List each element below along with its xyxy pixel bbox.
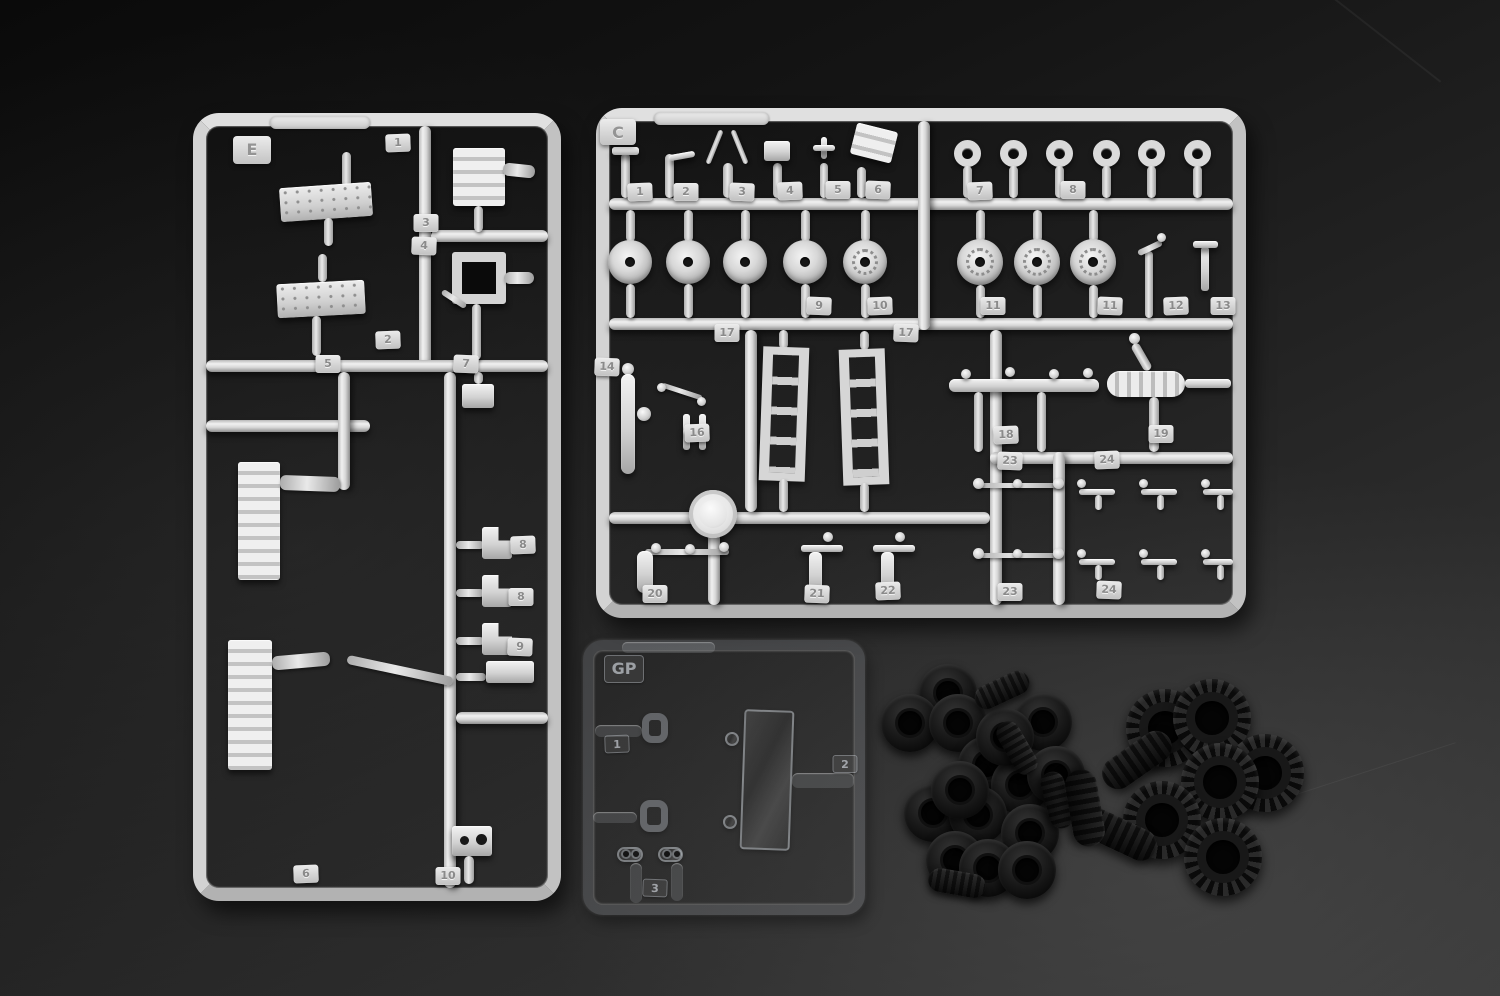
part-exhaust-pipe xyxy=(621,374,635,474)
sprue-c-runner xyxy=(745,330,757,512)
part-winch-drum xyxy=(1107,371,1185,397)
sprue-c-part-number-tag: 24 xyxy=(1094,451,1120,470)
sprue-e-runner xyxy=(444,372,456,888)
sprue-e-frame xyxy=(193,113,561,901)
part-clear-window xyxy=(642,713,668,743)
sprue-c-part-number-tag: 19 xyxy=(1149,425,1174,443)
part-running-board xyxy=(276,280,366,319)
part-ladder-frame xyxy=(839,348,890,486)
part-step-bracket xyxy=(482,575,512,607)
sprue-e-part-number-tag: 10 xyxy=(436,867,461,885)
sprue-c-part-number-tag: 17 xyxy=(893,324,919,343)
surface-scratch xyxy=(1284,742,1455,799)
sprue-c-part-number-tag: 10 xyxy=(867,297,893,316)
sprue-gp-embossed-code xyxy=(622,642,715,653)
part-fuel-tank xyxy=(228,640,272,770)
sprue-c-part-number-tag: 8 xyxy=(1061,181,1086,199)
sprue-gate xyxy=(456,541,484,549)
sprue-gate xyxy=(474,372,483,384)
part-mirror xyxy=(764,141,790,161)
sprue-gate xyxy=(324,218,333,246)
part-clear-light xyxy=(617,847,643,862)
sprue-gp-part-number-tag: 3 xyxy=(642,879,668,898)
part-shift-lever xyxy=(1201,247,1209,291)
sprue-e-letter-plate: E xyxy=(233,136,271,164)
sprue-c-part-number-tag: 12 xyxy=(1163,297,1189,316)
part-valve-cross xyxy=(813,145,835,151)
sprue-c-part-number-tag: 2 xyxy=(674,183,699,201)
sprue-gate xyxy=(502,162,535,178)
sprue-c-embossed-code xyxy=(654,112,769,125)
sprue-c-part-number-tag: 16 xyxy=(684,424,710,443)
sprue-e-part-number-tag: 8 xyxy=(509,588,534,606)
part-running-board xyxy=(279,182,373,222)
sprue-c-part-number-tag: 5 xyxy=(826,181,851,199)
sprue-c-part-number-tag: 22 xyxy=(875,582,901,601)
tire-hub-hole xyxy=(1031,710,1055,734)
sprue-gate xyxy=(272,651,331,670)
sprue-c-runner xyxy=(609,512,990,524)
sprue-e-part-number-tag: 1 xyxy=(385,134,411,153)
sprue-e-runner xyxy=(338,372,350,490)
part-grease-gun xyxy=(612,147,639,155)
sprue-c-part-number-tag: 17 xyxy=(715,324,740,342)
sprue-e-part-number-tag: 9 xyxy=(507,638,533,657)
part-clear-windshield xyxy=(740,709,795,851)
sprue-c-part-number-tag: 14 xyxy=(594,358,620,377)
part-tow-cable-arm xyxy=(705,129,723,164)
sprue-gate xyxy=(456,673,486,681)
part-tow-hitch xyxy=(486,661,534,683)
sprue-e-embossed-code xyxy=(270,116,370,129)
sprue-gate xyxy=(312,316,321,356)
tire-hub-hole xyxy=(948,778,972,802)
sprue-c-part-number-tag: 13 xyxy=(1211,297,1236,315)
part-stowage-box xyxy=(453,148,505,206)
sprue-c-part-number-tag: 23 xyxy=(998,583,1023,601)
sprue-gate xyxy=(504,272,534,284)
sprue-gate xyxy=(456,637,484,645)
sprue-e-part-number-tag: 6 xyxy=(293,865,319,884)
sprue-gate xyxy=(472,304,481,360)
sprue-e-part-number-tag: 8 xyxy=(510,536,536,555)
sprue-c-letter-plate: C xyxy=(600,119,636,145)
sprue-c-part-number-tag: 1 xyxy=(627,183,653,202)
part-hole xyxy=(476,834,487,845)
kit-photo-scene: E C GP 134257889610123456789101111121314… xyxy=(0,0,1500,996)
sprue-c-part-number-tag: 4 xyxy=(777,182,803,201)
tire-hub-hole xyxy=(1195,701,1229,735)
sprue-e-part-number-tag: 5 xyxy=(316,355,341,373)
part-mirror-large xyxy=(850,122,898,163)
surface-scratch xyxy=(1259,0,1441,83)
tire-hub-hole xyxy=(1015,858,1039,882)
rubber-tire-small xyxy=(931,761,989,819)
sprue-e-part-number-tag: 2 xyxy=(375,331,401,350)
sprue-e-runner xyxy=(456,712,548,724)
sprue-c-part-number-tag: 23 xyxy=(997,452,1023,471)
sprue-e-part-number-tag: 7 xyxy=(453,355,479,374)
sprue-c-part-number-tag: 11 xyxy=(1097,297,1123,316)
part-ladder-frame xyxy=(759,346,810,482)
sprue-gp-letter-plate: GP xyxy=(604,655,644,683)
sprue-c-part-number-tag: 9 xyxy=(806,297,832,316)
tire-hub-hole xyxy=(1203,765,1237,799)
part-fuel-tank xyxy=(238,462,280,580)
rubber-tire-large xyxy=(1184,818,1262,896)
sprue-c-part-number-tag: 18 xyxy=(993,426,1019,445)
sprue-e-part-number-tag: 3 xyxy=(414,214,439,232)
rubber-tire-large xyxy=(1062,767,1107,849)
sprue-c-runner xyxy=(918,121,930,330)
sprue-c-part-number-tag: 11 xyxy=(981,297,1006,315)
tire-hub-hole xyxy=(898,711,922,735)
part-small-bracket xyxy=(462,384,494,408)
sprue-gate xyxy=(342,152,351,187)
rubber-tire-small xyxy=(998,841,1056,899)
part-hole xyxy=(460,836,469,845)
sprue-gate xyxy=(280,475,340,492)
sprue-c-part-number-tag: 7 xyxy=(967,182,993,201)
part-tow-cable-arm xyxy=(730,129,748,164)
sprue-e-runner xyxy=(431,230,548,242)
sprue-c-part-number-tag: 24 xyxy=(1096,581,1122,600)
part-clear-lens xyxy=(725,732,739,746)
part-axle-beam xyxy=(949,379,1099,392)
sprue-gp-part-number-tag: 2 xyxy=(833,755,858,773)
sprue-c-part-number-tag: 20 xyxy=(643,585,668,603)
tire-hub-hole xyxy=(946,711,970,735)
sprue-gate xyxy=(318,254,327,282)
sprue-c-part-number-tag: 21 xyxy=(804,585,830,604)
part-step-bracket xyxy=(482,527,512,559)
part-spare-wheel-disc xyxy=(689,490,737,538)
sprue-gp-part-number-tag: 1 xyxy=(604,735,630,754)
sprue-gate xyxy=(474,206,483,232)
sprue-c-part-number-tag: 6 xyxy=(865,181,891,200)
part-winch-shaft xyxy=(1185,379,1231,388)
part-tool xyxy=(669,151,696,161)
sprue-gate xyxy=(346,655,454,686)
part-frame-bracket xyxy=(452,252,506,304)
sprue-e-runner xyxy=(206,360,548,372)
sprue-e-part-number-tag: 4 xyxy=(411,237,437,256)
sprue-gate xyxy=(456,589,484,597)
part-clear-window xyxy=(640,800,668,832)
sprue-gate xyxy=(464,856,474,884)
part-clear-lens xyxy=(723,815,737,829)
tire-hub-hole xyxy=(1206,840,1240,874)
sprue-c-runner xyxy=(1053,452,1065,605)
sprue-c-part-number-tag: 3 xyxy=(729,183,755,202)
